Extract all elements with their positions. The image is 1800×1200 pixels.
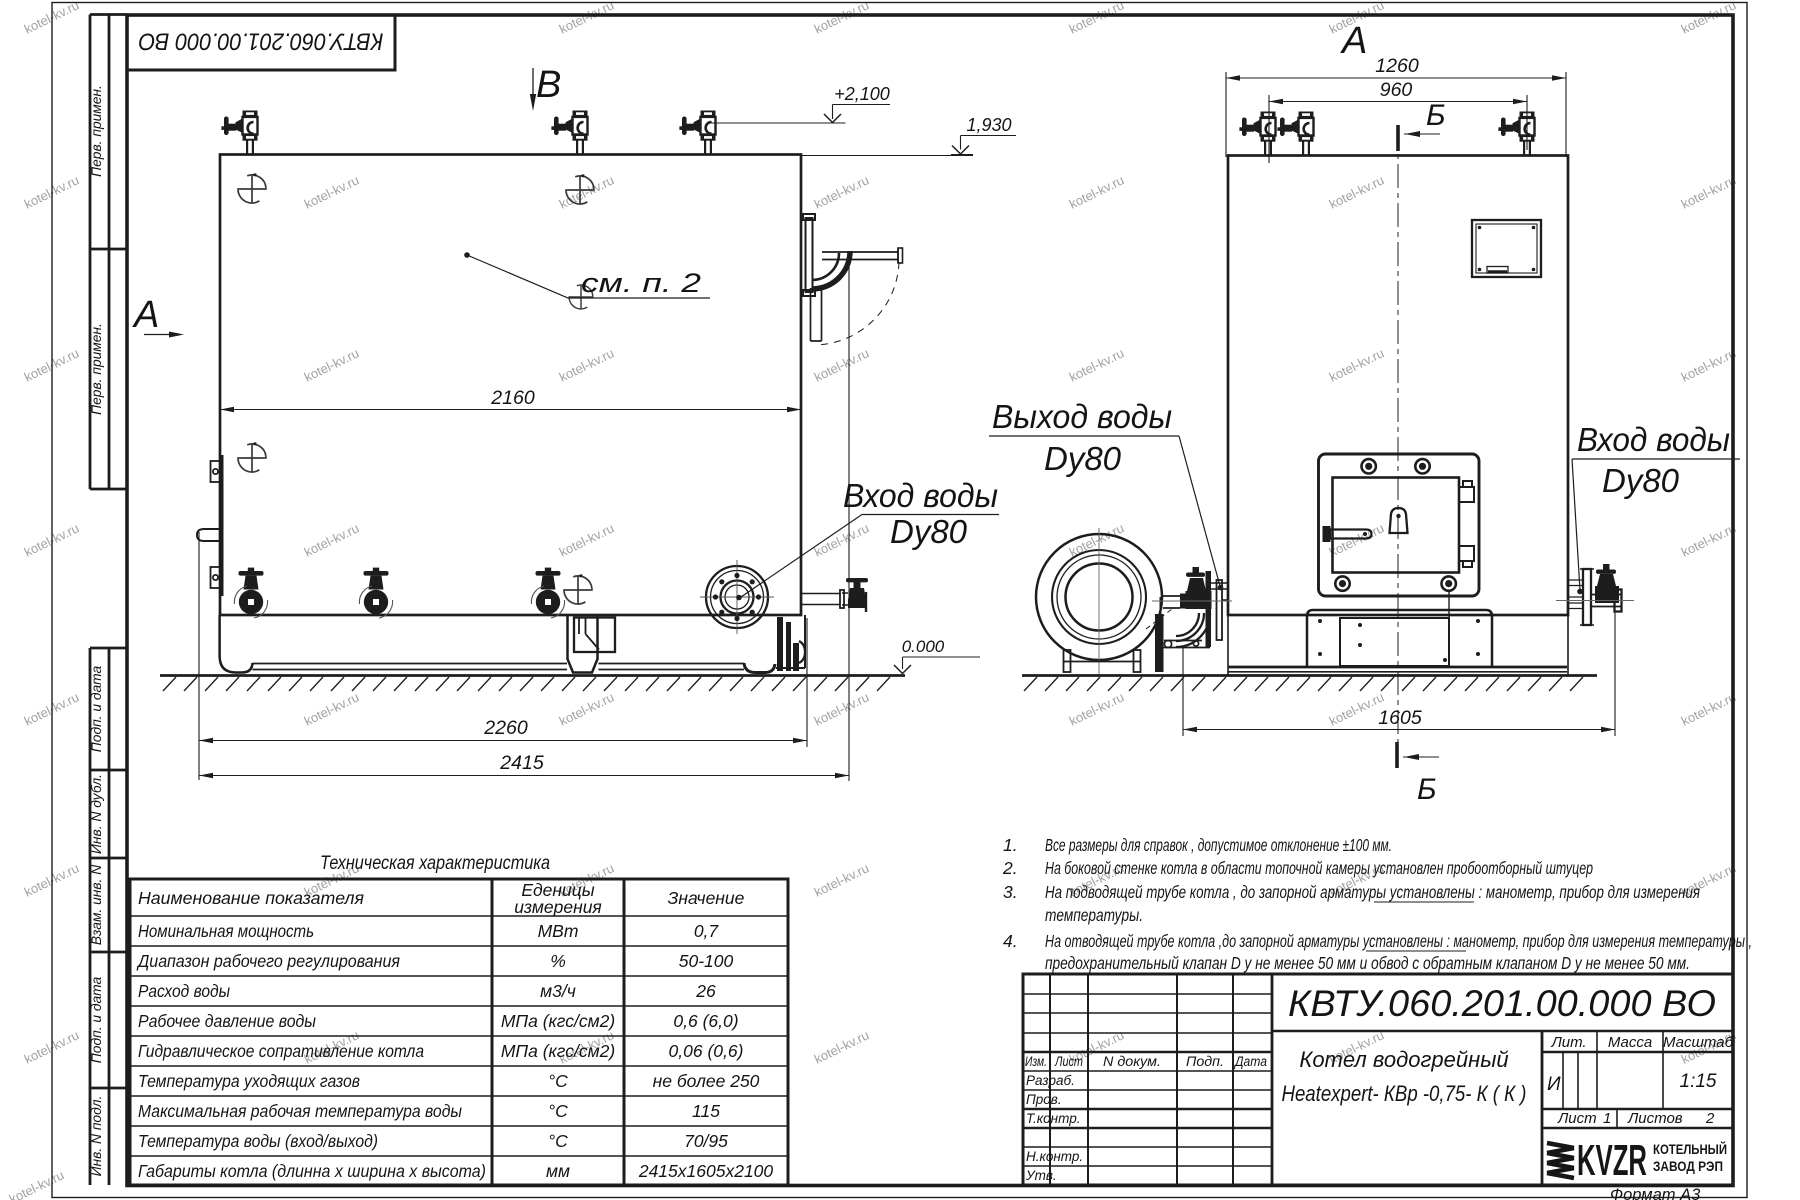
- svg-text:2415: 2415: [499, 752, 544, 774]
- svg-text:Номинальная мощность: Номинальная мощность: [138, 921, 314, 941]
- svg-text:Перв. примен.: Перв. примен.: [89, 323, 104, 415]
- svg-text:А: А: [132, 294, 159, 336]
- svg-text:Н.контр.: Н.контр.: [1026, 1149, 1083, 1164]
- svg-text:kotel-kv.ru: kotel-kv.ru: [302, 345, 362, 384]
- svg-text:kotel-kv.ru: kotel-kv.ru: [1679, 345, 1739, 384]
- svg-text:kotel-kv.ru: kotel-kv.ru: [302, 689, 362, 728]
- svg-text:Листов: Листов: [1627, 1110, 1683, 1127]
- svg-text:1.: 1.: [1003, 835, 1018, 855]
- svg-text:kotel-kv.ru: kotel-kv.ru: [7, 1167, 67, 1200]
- svg-text:Масштаб: Масштаб: [1663, 1034, 1734, 1051]
- svg-text:Лит.: Лит.: [1550, 1034, 1586, 1051]
- svg-text:Пров.: Пров.: [1026, 1092, 1062, 1107]
- svg-text:Габариты котла (длинна х ширин: Габариты котла (длинна х ширина х высота…: [138, 1161, 486, 1181]
- svg-text:мм: мм: [546, 1161, 570, 1181]
- svg-text:КВТУ.060.201.00.000 ВО: КВТУ.060.201.00.000 ВО: [139, 28, 384, 55]
- svg-text:В: В: [536, 64, 561, 106]
- svg-text:МПа (кгс/см2): МПа (кгс/см2): [501, 1041, 615, 1061]
- svg-text:kotel-kv.ru: kotel-kv.ru: [302, 172, 362, 211]
- svg-text:°С: °С: [548, 1071, 568, 1091]
- svg-text:kotel-kv.ru: kotel-kv.ru: [1679, 172, 1739, 211]
- svg-text:kotel-kv.ru: kotel-kv.ru: [1067, 172, 1127, 211]
- svg-text:Разраб.: Разраб.: [1026, 1073, 1075, 1088]
- svg-text:Формат А3: Формат А3: [1610, 1186, 1701, 1200]
- svg-text:Подп.: Подп.: [1186, 1054, 1224, 1069]
- svg-text:Лист: Лист: [1557, 1110, 1597, 1127]
- svg-text:Вход воды: Вход воды: [843, 477, 998, 514]
- svg-text:%: %: [550, 951, 566, 971]
- svg-text:Температура уходящих газов: Температура уходящих газов: [138, 1071, 360, 1091]
- svg-text:Утв.: Утв.: [1025, 1168, 1057, 1183]
- svg-text:0.000: 0.000: [902, 637, 945, 656]
- svg-text:°С: °С: [548, 1131, 568, 1151]
- svg-text:Максимальная рабочая температу: Максимальная рабочая температура воды: [138, 1101, 462, 1121]
- svg-text:Инв. N подл.: Инв. N подл.: [89, 1096, 104, 1177]
- svg-text:Расход воды: Расход воды: [138, 981, 230, 1001]
- svg-text:2160: 2160: [490, 387, 535, 409]
- svg-text:Все размеры для справок , допу: Все размеры для справок , допустимое отк…: [1045, 835, 1392, 855]
- svg-text:температуры.: температуры.: [1045, 905, 1143, 925]
- svg-text:kotel-kv.ru: kotel-kv.ru: [812, 520, 872, 559]
- svg-text:N докум.: N докум.: [1103, 1054, 1161, 1069]
- svg-text:На боковой стенке котла в обла: На боковой стенке котла в области топочн…: [1045, 858, 1593, 878]
- svg-text:1: 1: [1603, 1110, 1611, 1127]
- svg-text:Техническая характеристика: Техническая характеристика: [320, 852, 550, 874]
- svg-text:kotel-kv.ru: kotel-kv.ru: [812, 689, 872, 728]
- svg-text:kotel-kv.ru: kotel-kv.ru: [812, 0, 872, 37]
- svg-text:см. п. 2: см. п. 2: [581, 268, 701, 298]
- svg-text:МВт: МВт: [538, 921, 579, 941]
- svg-text:+2,100: +2,100: [834, 84, 890, 104]
- svg-text:МПа (кгс/см2): МПа (кгс/см2): [501, 1011, 615, 1031]
- svg-text:1260: 1260: [1375, 55, 1419, 77]
- svg-text:Гидравлическое сопративление к: Гидравлическое сопративление котла: [138, 1041, 424, 1061]
- svg-text:kotel-kv.ru: kotel-kv.ru: [557, 689, 617, 728]
- svg-text:предохранительный клапан D у: предохранительный клапан D у не менее 50…: [1045, 953, 1690, 973]
- svg-text:Лист: Лист: [1054, 1054, 1083, 1069]
- svg-text:Подп. и дата: Подп. и дата: [89, 665, 104, 752]
- svg-text:kotel-kv.ru: kotel-kv.ru: [1327, 172, 1387, 211]
- svg-text:50-100: 50-100: [679, 951, 734, 971]
- svg-text:kotel-kv.ru: kotel-kv.ru: [812, 345, 872, 384]
- svg-text:4.: 4.: [1003, 931, 1018, 951]
- svg-text:На отводящей трубе котла ,до з: На отводящей трубе котла ,до запорной ар…: [1045, 931, 1752, 951]
- svg-text:Подп. и дата: Подп. и дата: [89, 976, 104, 1063]
- svg-text:измерения: измерения: [514, 897, 602, 917]
- svg-text:Dy80: Dy80: [1602, 462, 1680, 499]
- svg-text:Heatexpert- КВр -0,75- К ( К ): Heatexpert- КВр -0,75- К ( К ): [1282, 1081, 1527, 1106]
- svg-text:Температура воды (вход/выход): Температура воды (вход/выход): [138, 1131, 378, 1151]
- svg-text:Б: Б: [1417, 773, 1437, 806]
- svg-text:0,7: 0,7: [694, 921, 720, 941]
- svg-text:2415х1605х2100: 2415х1605х2100: [638, 1161, 774, 1181]
- svg-text:м3/ч: м3/ч: [540, 981, 576, 1001]
- svg-text:КОТЕЛЬНЫЙ: КОТЕЛЬНЫЙ: [1653, 1142, 1727, 1157]
- svg-text:ЗАВОД РЭП: ЗАВОД РЭП: [1653, 1159, 1723, 1174]
- svg-text:1605: 1605: [1378, 707, 1422, 729]
- svg-text:1:15: 1:15: [1680, 1071, 1717, 1092]
- svg-text:А: А: [1340, 20, 1367, 62]
- svg-text:26: 26: [695, 981, 716, 1001]
- svg-text:Наименование показателя: Наименование показателя: [138, 888, 364, 908]
- svg-text:Инв. N дубл.: Инв. N дубл.: [89, 774, 104, 854]
- svg-text:kotel-kv.ru: kotel-kv.ru: [1067, 345, 1127, 384]
- svg-text:kotel-kv.ru: kotel-kv.ru: [1679, 520, 1739, 559]
- svg-text:kotel-kv.ru: kotel-kv.ru: [812, 860, 872, 899]
- svg-text:2: 2: [1705, 1110, 1715, 1127]
- svg-text:1,930: 1,930: [966, 115, 1011, 135]
- svg-text:70/95: 70/95: [684, 1131, 728, 1151]
- svg-text:И: И: [1547, 1074, 1561, 1095]
- svg-text:0,06 (0,6): 0,06 (0,6): [669, 1041, 744, 1061]
- svg-text:Масса: Масса: [1608, 1034, 1652, 1051]
- svg-text:kotel-kv.ru: kotel-kv.ru: [1067, 689, 1127, 728]
- svg-text:3.: 3.: [1003, 882, 1018, 902]
- svg-text:kotel-kv.ru: kotel-kv.ru: [302, 520, 362, 559]
- svg-text:kotel-kv.ru: kotel-kv.ru: [812, 172, 872, 211]
- svg-text:Значение: Значение: [668, 888, 745, 908]
- svg-text:Рабочее давление воды: Рабочее давление воды: [138, 1011, 316, 1031]
- svg-text:Изм.: Изм.: [1025, 1054, 1047, 1069]
- svg-text:kotel-kv.ru: kotel-kv.ru: [1067, 0, 1127, 37]
- svg-text:kotel-kv.ru: kotel-kv.ru: [1679, 0, 1739, 37]
- svg-text:2260: 2260: [483, 717, 528, 739]
- svg-text:kotel-kv.ru: kotel-kv.ru: [1327, 345, 1387, 384]
- svg-text:kotel-kv.ru: kotel-kv.ru: [812, 1027, 872, 1066]
- svg-text:Вход воды: Вход воды: [1577, 421, 1730, 458]
- svg-text:Дата: Дата: [1233, 1054, 1267, 1069]
- svg-text:Перв. примен.: Перв. примен.: [89, 85, 104, 177]
- svg-text:Котел водогрейный: Котел водогрейный: [1299, 1047, 1508, 1072]
- svg-text:KVZR: KVZR: [1577, 1136, 1647, 1185]
- svg-text:не более 250: не более 250: [653, 1071, 760, 1091]
- svg-text:2.: 2.: [1002, 858, 1018, 878]
- svg-text:kotel-kv.ru: kotel-kv.ru: [1679, 689, 1739, 728]
- svg-text:На подводящей трубе котла ,: На подводящей трубе котла , до запорной …: [1045, 882, 1700, 902]
- svg-text:115: 115: [692, 1101, 720, 1121]
- svg-text:0,6 (6,0): 0,6 (6,0): [673, 1011, 738, 1031]
- svg-text:°С: °С: [548, 1101, 568, 1121]
- svg-text:kotel-kv.ru: kotel-kv.ru: [557, 345, 617, 384]
- svg-text:Т.контр.: Т.контр.: [1026, 1111, 1080, 1126]
- svg-text:kotel-kv.ru: kotel-kv.ru: [1327, 520, 1387, 559]
- svg-text:kotel-kv.ru: kotel-kv.ru: [557, 520, 617, 559]
- svg-text:kotel-kv.ru: kotel-kv.ru: [557, 0, 617, 37]
- svg-text:КВТУ.060.201.00.000 ВО: КВТУ.060.201.00.000 ВО: [1288, 983, 1716, 1024]
- svg-text:960: 960: [1380, 79, 1413, 101]
- svg-text:Dy80: Dy80: [1044, 440, 1122, 477]
- svg-text:Dy80: Dy80: [890, 513, 968, 550]
- svg-text:Диапазон рабочего регулировани: Диапазон рабочего регулирования: [136, 951, 400, 971]
- svg-text:Выход воды: Выход воды: [992, 398, 1172, 435]
- svg-text:Взам. инв. N: Взам. инв. N: [89, 865, 104, 945]
- svg-text:Б: Б: [1426, 99, 1446, 132]
